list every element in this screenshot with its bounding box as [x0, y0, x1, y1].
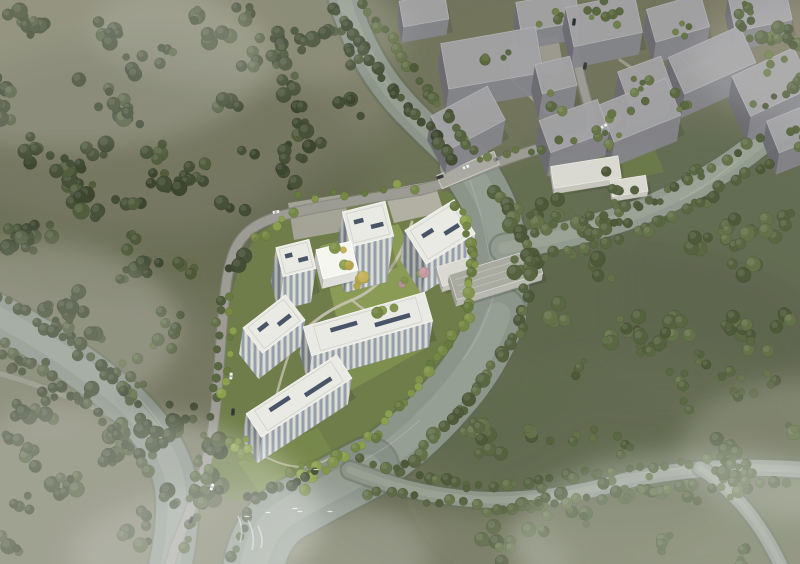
aerial-masterplan-rendering	[0, 0, 800, 564]
aerial-rendering-canvas	[0, 0, 800, 564]
